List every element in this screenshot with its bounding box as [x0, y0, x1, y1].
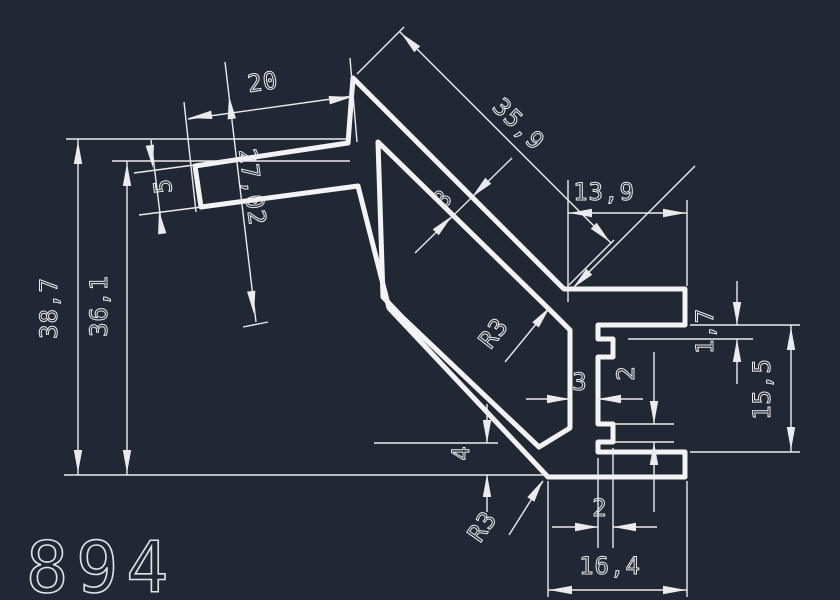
dimension-lines — [64, 27, 800, 597]
dim-label-top-width: 20 — [246, 66, 281, 98]
dim-label-channel-height: 15,5 — [748, 358, 776, 420]
part-number: 894 — [26, 527, 176, 600]
dim-label-tooth-width: 2 — [592, 494, 607, 522]
dim-label-finger-length: 27,02 — [233, 147, 271, 227]
dim-label-finger-width: 5 — [148, 177, 178, 196]
dim-label-slope-length: 35,9 — [487, 93, 550, 156]
cad-viewport: 38,7 36,1 20 5 27,02 35,9 13,9 3 R3 3 2 … — [0, 0, 840, 600]
dim-label-inner-height: 36,1 — [85, 275, 113, 337]
dim-label-outer-radius: R3 — [462, 506, 503, 547]
cad-canvas: 38,7 36,1 20 5 27,02 35,9 13,9 3 R3 3 2 … — [0, 0, 840, 600]
dim-label-flange-width: 13,9 — [573, 178, 635, 206]
dim-label-wall-thickness: 3 — [427, 184, 458, 214]
dim-label-base-thickness: 4 — [447, 445, 475, 460]
profile-geometry — [195, 78, 685, 477]
dim-label-base-width: 16,4 — [579, 552, 641, 580]
dim-label-tooth-height: 2 — [612, 365, 640, 380]
profile-outer-contour — [195, 78, 685, 477]
dim-label-web-gap: 3 — [572, 368, 587, 396]
dim-label-overall-height: 38,7 — [35, 277, 63, 339]
dim-label-lip-thickness: 1,7 — [691, 308, 719, 354]
dim-label-inner-radius: R3 — [473, 312, 514, 354]
